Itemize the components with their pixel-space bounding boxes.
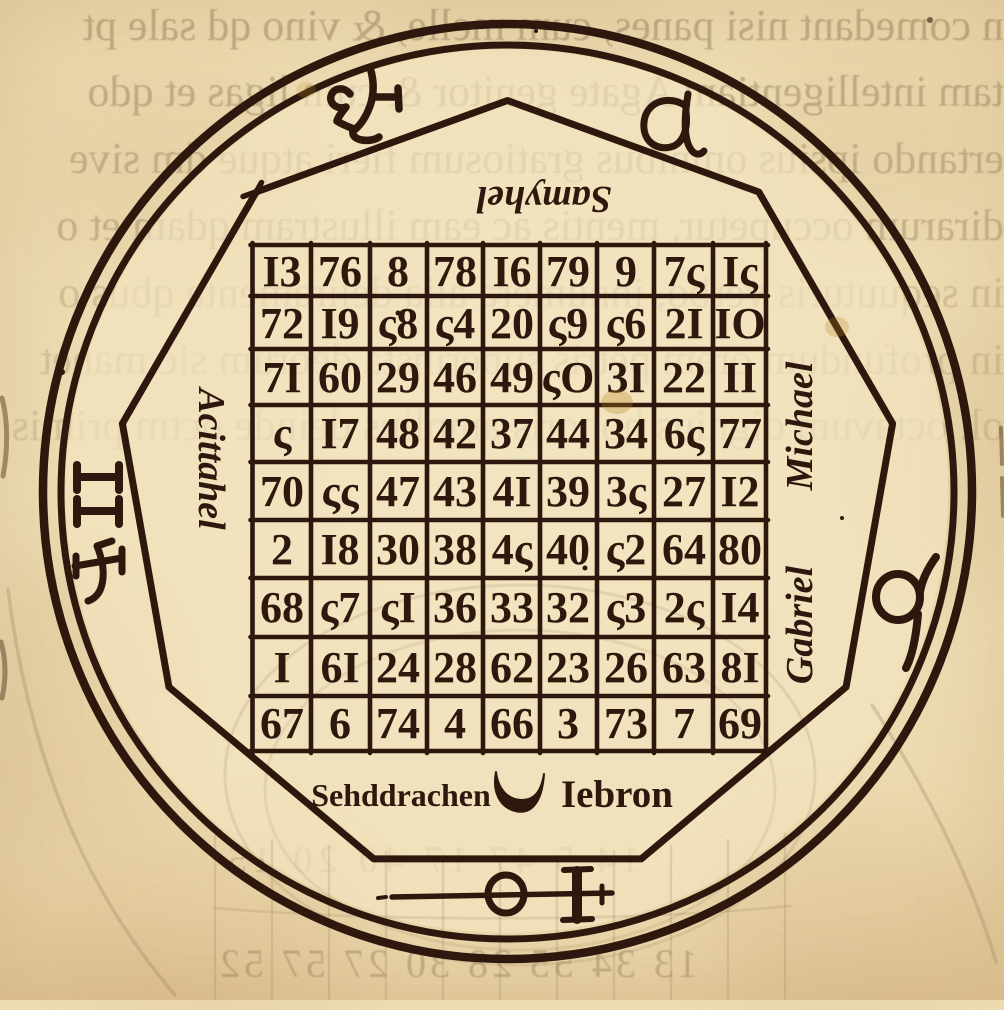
svg-text:2I: 2I: [664, 299, 703, 348]
svg-text:28: 28: [433, 643, 477, 692]
svg-text:I6: I6: [492, 247, 531, 296]
svg-text:44: 44: [546, 409, 590, 458]
svg-text:47: 47: [376, 467, 420, 516]
svg-text:80: 80: [718, 525, 762, 574]
svg-text:3: 3: [557, 699, 579, 748]
svg-text:34: 34: [604, 409, 648, 458]
svg-text:68: 68: [260, 583, 304, 632]
svg-text:Michael: Michael: [779, 361, 821, 491]
svg-text:7I: 7I: [262, 353, 301, 402]
svg-text:8I: 8I: [720, 643, 759, 692]
svg-text:78: 78: [433, 247, 477, 296]
svg-text:37: 37: [490, 409, 534, 458]
svg-text:63: 63: [662, 643, 706, 692]
svg-text:ςO: ςO: [542, 353, 595, 402]
svg-text:38: 38: [433, 525, 477, 574]
svg-text:ς6: ς6: [606, 299, 647, 348]
svg-text:7ς: 7ς: [664, 247, 706, 296]
svg-text:26: 26: [604, 643, 648, 692]
svg-text:79: 79: [546, 247, 590, 296]
svg-text:49: 49: [490, 353, 534, 402]
svg-text:62: 62: [490, 643, 534, 692]
svg-text:ς3: ς3: [606, 583, 647, 632]
svg-text:73: 73: [604, 699, 648, 748]
svg-text:4ς: 4ς: [492, 525, 534, 574]
svg-text:72: 72: [260, 299, 304, 348]
svg-text:3ς: 3ς: [606, 467, 648, 516]
svg-text:ς9: ς9: [548, 299, 589, 348]
svg-text:23: 23: [546, 643, 590, 692]
svg-text:Gabriel: Gabriel: [779, 565, 821, 684]
svg-text:6: 6: [329, 699, 351, 748]
svg-text:ςς: ςς: [321, 467, 360, 516]
svg-text:I8: I8: [320, 525, 359, 574]
svg-text:ς7: ς7: [320, 583, 361, 632]
svg-text:ς4: ς4: [435, 299, 476, 348]
svg-text:I9: I9: [320, 299, 359, 348]
svg-text:6I: 6I: [320, 643, 359, 692]
svg-text:74: 74: [376, 699, 420, 748]
svg-text:I: I: [273, 643, 290, 692]
svg-text:64: 64: [662, 525, 706, 574]
svg-text:33: 33: [490, 583, 534, 632]
svg-text:30: 30: [376, 525, 420, 574]
svg-text:36: 36: [433, 583, 477, 632]
svg-text:6ς: 6ς: [664, 409, 706, 458]
svg-text:77: 77: [718, 409, 762, 458]
svg-text:27: 27: [662, 467, 706, 516]
svg-text:IO: IO: [714, 299, 765, 348]
svg-text:Sehddrachen: Sehddrachen: [311, 777, 491, 813]
svg-text:ς8: ς8: [378, 299, 419, 348]
svg-text:60: 60: [318, 353, 362, 402]
svg-text:II: II: [723, 353, 757, 402]
svg-text:22: 22: [662, 353, 706, 402]
svg-text:4: 4: [444, 699, 466, 748]
svg-text:8: 8: [387, 247, 409, 296]
svg-text:I7: I7: [320, 409, 359, 458]
svg-text:76: 76: [318, 247, 362, 296]
svg-text:32: 32: [546, 583, 590, 632]
svg-text:20: 20: [490, 299, 534, 348]
svg-text:67: 67: [260, 699, 304, 748]
svg-text:43: 43: [433, 467, 477, 516]
svg-text:39: 39: [546, 467, 590, 516]
svg-text:9: 9: [615, 247, 637, 296]
svg-text:I2: I2: [720, 467, 759, 516]
svg-text:4I: 4I: [492, 467, 531, 516]
svg-text:Samyhel: Samyhel: [476, 178, 612, 220]
svg-text:Iς: Iς: [722, 247, 759, 296]
svg-text:7: 7: [673, 699, 695, 748]
svg-text:ςI: ςI: [380, 583, 416, 632]
svg-text:48: 48: [376, 409, 420, 458]
svg-text:70: 70: [260, 467, 304, 516]
svg-text:I4: I4: [720, 583, 759, 632]
svg-text:ς2: ς2: [606, 525, 647, 574]
svg-text:42: 42: [433, 409, 477, 458]
svg-text:I3: I3: [262, 247, 301, 296]
svg-text:46: 46: [433, 353, 477, 402]
svg-text:Iebron: Iebron: [561, 773, 673, 816]
svg-text:Acittahel: Acittahel: [190, 386, 232, 530]
svg-text:24: 24: [376, 643, 420, 692]
svg-text:69: 69: [718, 699, 762, 748]
svg-text:66: 66: [490, 699, 534, 748]
svg-text:ς: ς: [273, 409, 293, 458]
svg-text:2: 2: [271, 525, 293, 574]
svg-text:2ς: 2ς: [664, 583, 706, 632]
svg-text:29: 29: [376, 353, 420, 402]
